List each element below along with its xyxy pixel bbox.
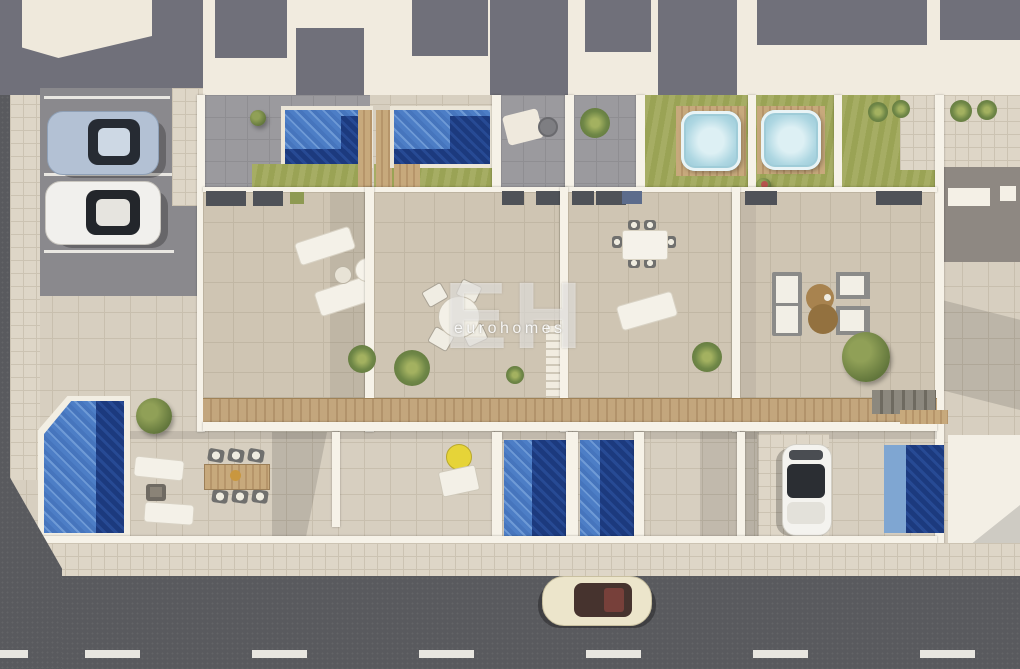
car-hood — [787, 502, 825, 524]
garden-wall — [566, 432, 578, 538]
car-white-roof — [96, 199, 130, 226]
armchair-cushion — [840, 310, 864, 331]
garden-wall — [332, 432, 340, 527]
sidewalk — [0, 543, 1020, 576]
dining-chair — [612, 236, 622, 248]
roof-recess — [296, 28, 364, 95]
round-table — [438, 296, 480, 338]
dining-chair — [231, 489, 249, 504]
lane-dash — [85, 650, 140, 658]
yard-wall — [565, 95, 574, 195]
planter — [290, 192, 304, 204]
coffee-table — [808, 304, 838, 334]
palm-plant — [580, 108, 610, 138]
driveway-shadow — [745, 432, 759, 542]
table-bowl — [230, 470, 241, 481]
pool-deep-end — [285, 149, 369, 164]
bench-blue — [622, 191, 642, 204]
dining-chair — [227, 448, 245, 464]
kitchenette — [502, 191, 524, 205]
yard-wall — [834, 95, 842, 195]
roof-recess — [658, 0, 737, 95]
yard-wall — [636, 95, 645, 195]
pool-steps — [884, 445, 906, 533]
roof-dark-topright — [940, 0, 1020, 40]
lane-dash — [753, 650, 808, 658]
palm-plant — [348, 345, 376, 373]
roof-recess — [490, 0, 568, 95]
garden-wall — [737, 432, 745, 542]
dining-table — [622, 230, 668, 260]
dining-chair — [247, 448, 265, 464]
roof-white-topright — [940, 40, 1020, 95]
terrace-shadow — [740, 192, 756, 398]
dining-chair — [628, 220, 640, 230]
yard-wall — [748, 95, 756, 195]
yard-pave — [574, 95, 636, 195]
fire-bowl — [538, 117, 558, 137]
kitchenette — [253, 191, 283, 206]
pool-deep-end — [394, 149, 490, 164]
divider-wall — [732, 187, 740, 432]
street-asphalt — [0, 576, 1020, 669]
palm-plant — [977, 100, 997, 120]
dining-chair — [251, 489, 269, 504]
roof-recess — [412, 0, 488, 56]
boardwalk — [203, 398, 937, 424]
divider-wall — [365, 187, 374, 432]
parking-line — [44, 96, 170, 99]
plunge-pool — [906, 445, 944, 533]
palm-plant — [394, 350, 430, 386]
pool-deep-end — [96, 401, 124, 533]
parapet — [203, 422, 937, 431]
hot-tub — [761, 110, 821, 170]
palm-plant — [892, 100, 910, 118]
dining-chair — [211, 489, 229, 504]
palm-plant — [950, 100, 972, 122]
pool-deep-end — [600, 440, 634, 536]
tree — [842, 332, 890, 382]
roof-recess — [757, 0, 927, 45]
side-table — [334, 266, 352, 284]
sun-lounger — [143, 501, 194, 525]
divider-wall — [560, 187, 568, 432]
garden-wall — [492, 432, 502, 538]
neighbor-door — [1000, 186, 1016, 201]
tree — [136, 398, 172, 434]
lane-dash — [419, 650, 474, 658]
shrub — [250, 110, 266, 126]
table-tray — [824, 294, 831, 301]
kitchenette — [876, 191, 922, 205]
fire-table-top — [150, 487, 162, 497]
garden-wall — [634, 432, 644, 538]
sofa-cushion — [776, 276, 798, 303]
lane-dash — [920, 650, 975, 658]
car-glass — [787, 464, 825, 498]
roof-recess — [215, 0, 287, 58]
armchair-cushion — [840, 276, 864, 295]
lane-dash — [0, 650, 28, 658]
kitchenette — [745, 191, 777, 205]
car-cream-rear-window — [604, 588, 624, 612]
small-plant — [506, 366, 524, 384]
parking-line — [44, 250, 174, 253]
pool-deep-end — [532, 440, 566, 536]
lane-dash — [586, 650, 641, 658]
roof-recess — [585, 0, 651, 52]
aerial-site-plan-render: EH eurohomes — [0, 0, 1020, 669]
deck-strip — [358, 110, 372, 195]
car-silver-roof — [98, 128, 130, 156]
palm-plant — [692, 342, 722, 372]
kitchenette — [572, 191, 594, 205]
lane-dash — [252, 650, 307, 658]
stair-landing — [900, 410, 948, 424]
car-rear-window — [789, 450, 823, 460]
neighbor-wall — [942, 167, 1020, 262]
hot-tub — [681, 111, 741, 171]
street-wall — [40, 536, 937, 543]
palm-plant — [868, 102, 888, 122]
dining-chair — [644, 220, 656, 230]
dining-chair — [207, 448, 225, 464]
neighbor-door — [948, 188, 990, 206]
yard-wall — [492, 95, 501, 195]
sofa-cushion — [776, 306, 798, 333]
kitchenette — [206, 191, 246, 206]
